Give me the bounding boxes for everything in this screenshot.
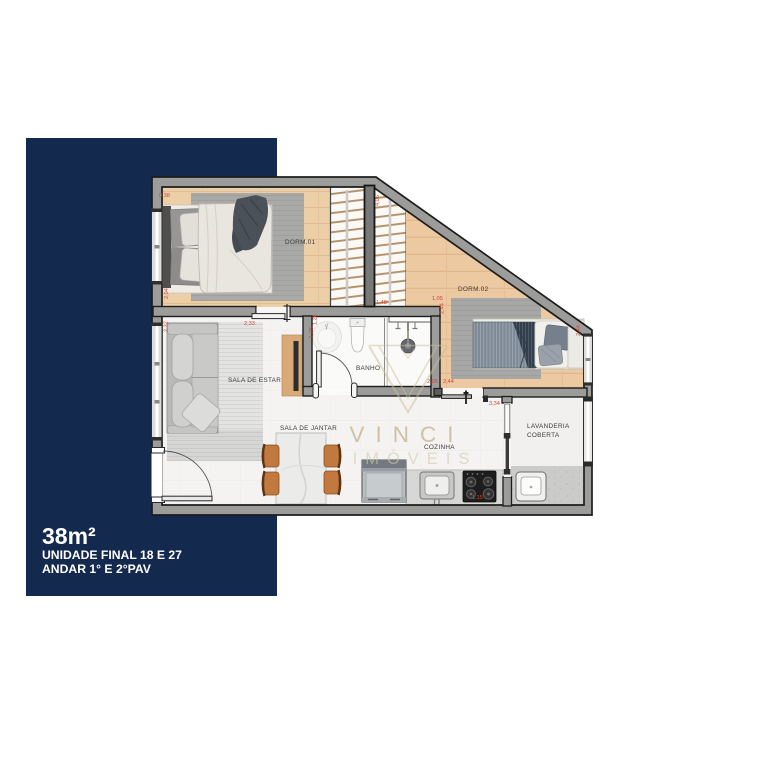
- svg-text:2,32: 2,32: [164, 321, 170, 332]
- svg-text:2,04: 2,04: [164, 288, 170, 299]
- svg-text:1,05: 1,05: [432, 296, 443, 302]
- svg-text:BANHO: BANHO: [356, 365, 380, 372]
- svg-text:3,34: 3,34: [489, 401, 500, 407]
- svg-text:0,38: 0,38: [159, 193, 170, 199]
- svg-text:IMÓVEIS: IMÓVEIS: [353, 449, 478, 468]
- svg-text:2,33: 2,33: [244, 321, 255, 327]
- svg-text:2,44: 2,44: [443, 379, 454, 385]
- svg-text:COBERTA: COBERTA: [527, 432, 560, 439]
- svg-text:2,44: 2,44: [576, 325, 582, 336]
- svg-text:LAVANDERIA: LAVANDERIA: [527, 423, 570, 430]
- svg-text:DORM.01: DORM.01: [285, 239, 316, 246]
- svg-text:1,26: 1,26: [313, 314, 319, 325]
- svg-text:VINCI: VINCI: [349, 422, 464, 447]
- svg-text:2,44: 2,44: [440, 303, 446, 314]
- svg-text:1,15: 1,15: [472, 495, 483, 501]
- svg-text:1,28: 1,28: [309, 327, 315, 338]
- svg-text:SALA DE ESTAR: SALA DE ESTAR: [228, 377, 281, 384]
- svg-text:2,05: 2,05: [427, 379, 438, 385]
- svg-text:DORM.02: DORM.02: [458, 286, 489, 293]
- svg-text:4,06: 4,06: [375, 195, 381, 206]
- svg-text:1,48: 1,48: [376, 300, 387, 306]
- svg-text:SALA DE JANTAR: SALA DE JANTAR: [280, 425, 337, 432]
